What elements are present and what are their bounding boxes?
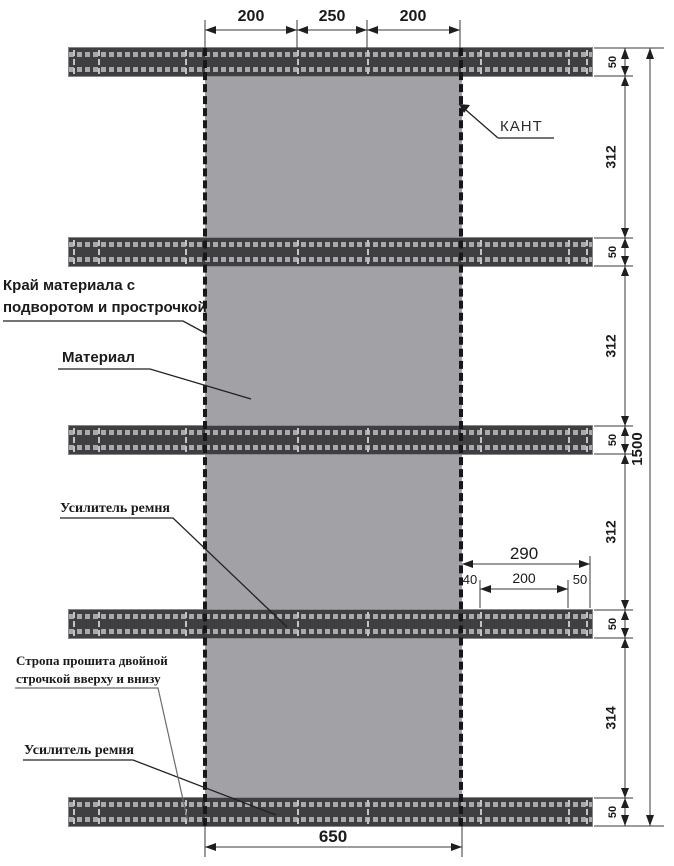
strap-stitching-label: Стропа прошита двойной строчкой вверху и… bbox=[16, 654, 168, 687]
belt-reinforcement-lower-label: Усилитель ремня bbox=[24, 743, 134, 758]
dim-top-right: 200 bbox=[400, 8, 427, 26]
dim-extension-middle: 200 bbox=[512, 571, 535, 586]
material-edge-label: Край материала с подворотом и прострочко… bbox=[3, 278, 207, 316]
dim-strap4-height: 50 bbox=[607, 618, 619, 630]
dim-gap-1: 312 bbox=[603, 145, 618, 168]
material-label: Материал bbox=[62, 350, 135, 367]
dim-bottom-width: 650 bbox=[319, 828, 347, 847]
dimension-arrowheads bbox=[205, 26, 654, 851]
kant-label: КАНТ bbox=[500, 119, 543, 136]
callout-leaders bbox=[3, 104, 554, 815]
technical-drawing: 200 250 200 650 290 40 200 50 50 50 50 5… bbox=[0, 0, 674, 866]
dim-gap-3: 312 bbox=[603, 520, 618, 543]
dim-extension-right: 50 bbox=[573, 573, 587, 587]
dim-strap1-height: 50 bbox=[607, 56, 619, 68]
dim-strap3-height: 50 bbox=[607, 434, 619, 446]
dim-overall-height: 1500 bbox=[630, 432, 647, 465]
dim-extension-left: 40 bbox=[463, 573, 477, 587]
dimension-lines bbox=[0, 0, 674, 866]
dim-gap-4: 314 bbox=[603, 706, 618, 729]
dim-top-center: 250 bbox=[319, 8, 346, 26]
material-edge-label-line1: Край материала с bbox=[3, 278, 207, 295]
strap-stitching-label-line1: Стропа прошита двойной bbox=[16, 654, 168, 668]
dim-extension-total: 290 bbox=[510, 545, 538, 564]
belt-reinforcement-upper-label: Усилитель ремня bbox=[60, 501, 170, 516]
strap-stitching-label-line2: строчкой вверху и внизу bbox=[16, 672, 168, 686]
dim-top-left: 200 bbox=[238, 8, 265, 26]
dim-strap2-height: 50 bbox=[607, 246, 619, 258]
dim-strap5-height: 50 bbox=[607, 806, 619, 818]
dim-gap-2: 312 bbox=[603, 334, 618, 357]
material-edge-label-line2: подворотом и прострочкой bbox=[3, 300, 207, 317]
